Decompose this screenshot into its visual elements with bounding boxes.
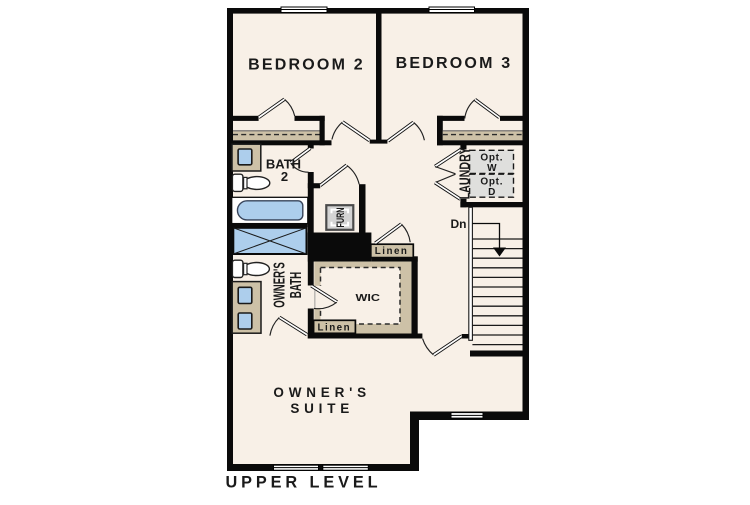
svg-text:Linen: Linen (375, 246, 409, 257)
svg-text:BEDROOM 3: BEDROOM 3 (396, 55, 513, 72)
svg-text:Linen: Linen (317, 323, 351, 334)
svg-text:Opt.: Opt. (480, 177, 503, 188)
svg-text:D: D (488, 187, 495, 198)
svg-text:BEDROOM 2: BEDROOM 2 (248, 57, 365, 74)
svg-text:BATH: BATH (288, 272, 305, 299)
svg-text:OWNER'S: OWNER'S (272, 262, 289, 308)
svg-text:OWNER'S: OWNER'S (273, 385, 371, 400)
svg-text:LAUNDRY: LAUNDRY (457, 147, 474, 199)
svg-text:WIC: WIC (356, 292, 381, 304)
svg-text:Opt.: Opt. (480, 153, 503, 164)
svg-text:2: 2 (281, 169, 288, 184)
svg-text:FURN: FURN (335, 207, 347, 227)
svg-text:Dn: Dn (451, 217, 467, 231)
svg-text:SUITE: SUITE (290, 401, 354, 416)
svg-text:W: W (487, 163, 497, 174)
svg-text:UPPER LEVEL: UPPER LEVEL (226, 474, 382, 492)
